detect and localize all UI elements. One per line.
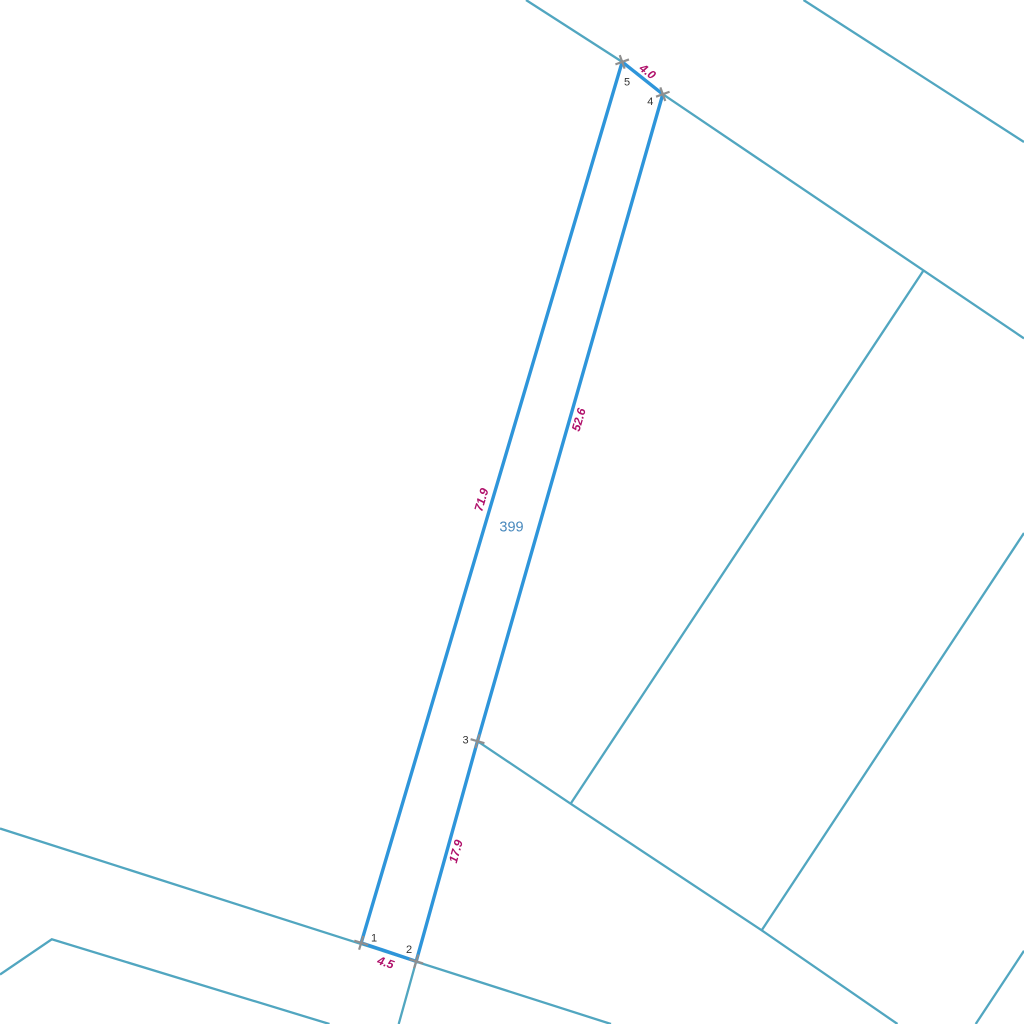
svg-text:5: 5 <box>624 76 630 88</box>
svg-text:399: 399 <box>499 520 523 536</box>
svg-text:1: 1 <box>371 933 377 945</box>
svg-text:4: 4 <box>647 96 653 108</box>
svg-text:2: 2 <box>406 944 412 956</box>
svg-text:3: 3 <box>462 735 468 747</box>
